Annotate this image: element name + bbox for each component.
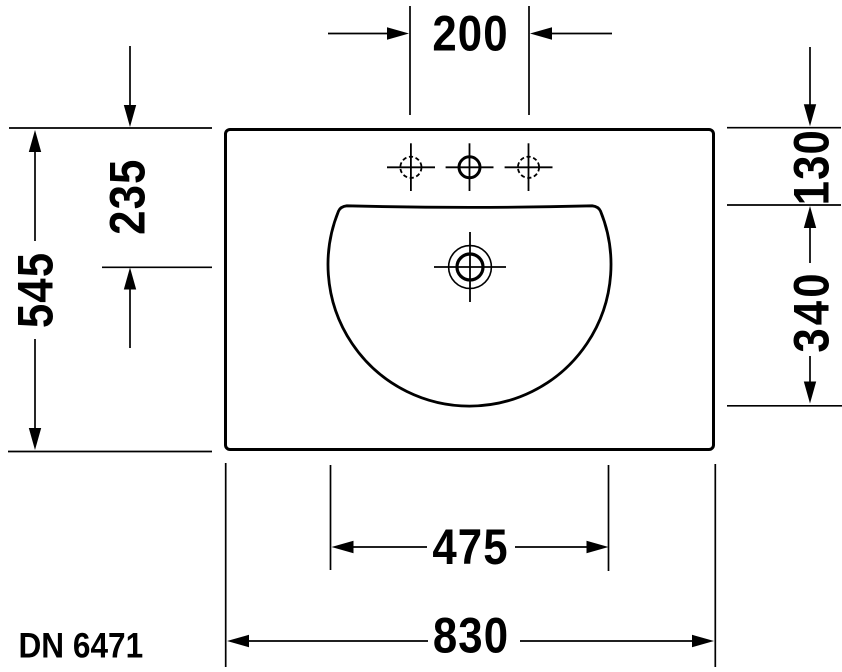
svg-text:130: 130 [783,129,839,205]
svg-text:DN 6471: DN 6471 [19,627,144,666]
svg-text:830: 830 [433,607,509,663]
svg-text:475: 475 [432,518,508,574]
svg-text:200: 200 [432,5,508,61]
svg-text:235: 235 [99,159,155,235]
svg-text:545: 545 [7,252,63,328]
svg-text:340: 340 [783,270,839,352]
